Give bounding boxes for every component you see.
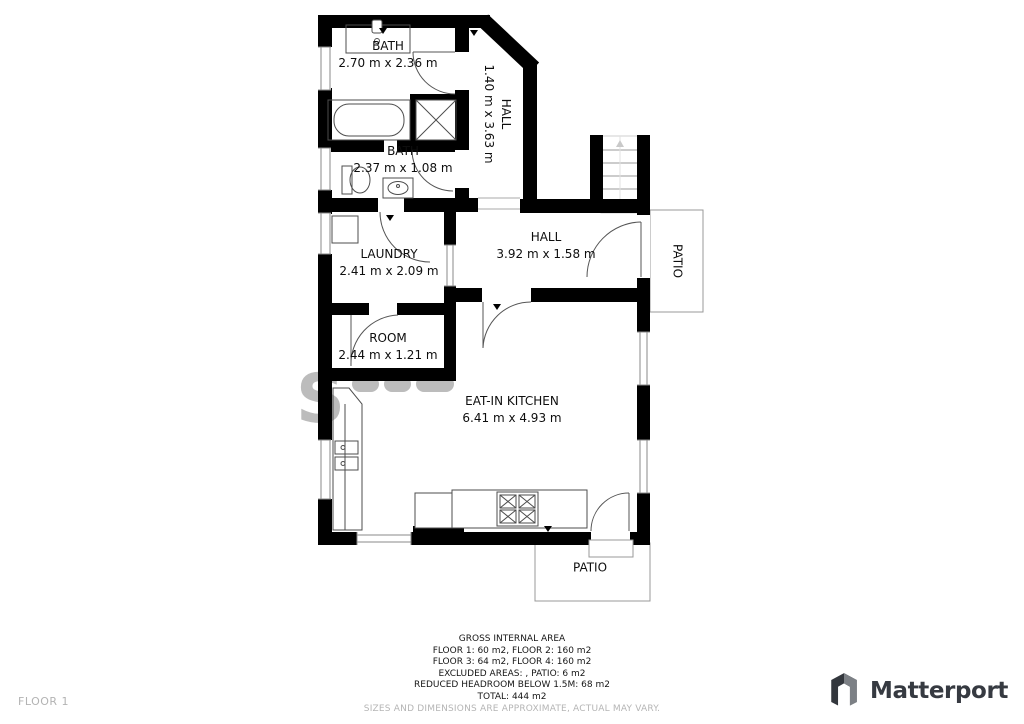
room-name: EAT-IN KITCHEN <box>462 393 561 410</box>
room-label-patio-bottom: PATIO <box>573 560 607 577</box>
room-dims: 2.70 m x 2.36 m <box>338 55 437 72</box>
matterport-logo: Matterport <box>827 672 1008 710</box>
room-label-bath-small: BATH 2.37 m x 1.08 m <box>353 143 452 177</box>
room-label-laundry: LAUNDRY 2.41 m x 2.09 m <box>339 246 438 280</box>
room-name: PATIO <box>573 560 607 577</box>
room-label-hall-upper: HALL 1.40 m x 3.63 m <box>480 64 514 163</box>
room-label-kitchen: EAT-IN KITCHEN 6.41 m x 4.93 m <box>462 393 561 427</box>
room-dims: 2.37 m x 1.08 m <box>353 160 452 177</box>
room-name: ROOM <box>338 330 437 347</box>
matterport-mark-icon <box>827 672 861 710</box>
room-dims: 1.40 m x 3.63 m <box>480 64 497 163</box>
room-name: HALL <box>496 229 595 246</box>
room-dims: 6.41 m x 4.93 m <box>462 410 561 427</box>
cabinet-icon <box>415 493 452 528</box>
bathtub-icon <box>328 100 410 140</box>
area-summary-line: FLOOR 1: 60 m2, FLOOR 2: 160 m2 <box>0 646 1024 658</box>
stove-icon <box>497 492 538 526</box>
brand-wordmark: Matterport <box>870 678 1008 704</box>
room-name: BATH <box>353 143 452 160</box>
room-label-hall-lower: HALL 3.92 m x 1.58 m <box>496 229 595 263</box>
room-name: LAUNDRY <box>339 246 438 263</box>
room-name: BATH <box>338 38 437 55</box>
room-name: HALL <box>497 64 514 163</box>
room-name: PATIO <box>669 244 686 278</box>
room-label-patio-right: PATIO <box>669 244 686 278</box>
patio-step <box>589 540 633 557</box>
room-dims: 3.92 m x 1.58 m <box>496 246 595 263</box>
room-label-bath-top: BATH 2.70 m x 2.36 m <box>338 38 437 72</box>
room-label-room: ROOM 2.44 m x 1.21 m <box>338 330 437 364</box>
room-dims: 2.44 m x 1.21 m <box>338 347 437 364</box>
cased-opening <box>478 196 520 210</box>
area-summary-line: FLOOR 3: 64 m2, FLOOR 4: 160 m2 <box>0 657 1024 669</box>
area-summary-line: GROSS INTERNAL AREA <box>0 634 1024 646</box>
washer-icon <box>332 216 358 243</box>
floorplan-page: S <box>0 0 1024 724</box>
room-dims: 2.41 m x 2.09 m <box>339 263 438 280</box>
floor-label: FLOOR 1 <box>18 695 69 708</box>
kitchen-sink-icon <box>335 441 358 454</box>
